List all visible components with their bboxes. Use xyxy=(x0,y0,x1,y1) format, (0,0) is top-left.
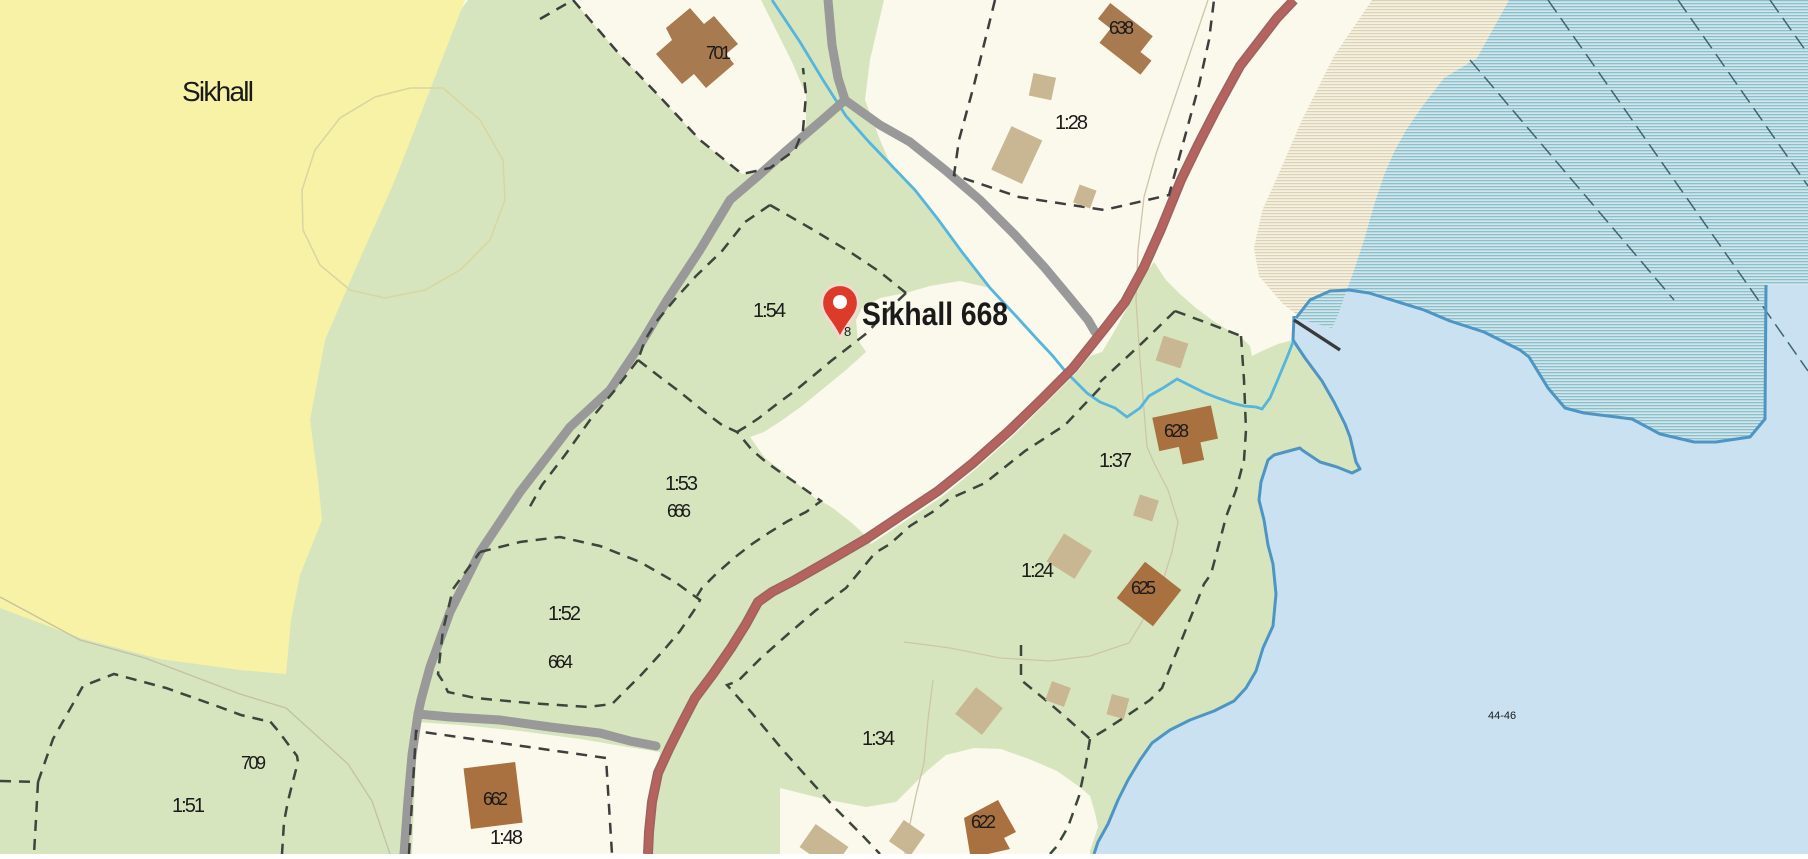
svg-text:1:24: 1:24 xyxy=(1021,560,1054,582)
svg-text:1:54: 1:54 xyxy=(753,300,786,322)
svg-text:Sikhall 668: Sikhall 668 xyxy=(862,296,1008,332)
svg-text:Sikhall: Sikhall xyxy=(182,76,254,107)
svg-text:1:52: 1:52 xyxy=(548,603,581,625)
svg-text:662: 662 xyxy=(483,789,508,809)
svg-text:44-46: 44-46 xyxy=(1488,710,1516,722)
svg-text:709: 709 xyxy=(241,753,266,773)
svg-text:1:37: 1:37 xyxy=(1099,450,1132,472)
svg-text:1:51: 1:51 xyxy=(172,795,205,817)
svg-text:625: 625 xyxy=(1131,578,1156,598)
svg-text:8: 8 xyxy=(844,324,851,339)
svg-text:1:28: 1:28 xyxy=(1055,112,1088,134)
svg-text:1:53: 1:53 xyxy=(665,473,698,495)
svg-text:628: 628 xyxy=(1164,421,1189,441)
svg-text:1:48: 1:48 xyxy=(490,827,523,849)
svg-text:638: 638 xyxy=(1109,18,1134,38)
svg-text:666: 666 xyxy=(667,501,691,521)
svg-text:1:34: 1:34 xyxy=(862,728,895,750)
svg-text:622: 622 xyxy=(971,812,996,832)
svg-text:701: 701 xyxy=(706,43,731,63)
svg-text:664: 664 xyxy=(548,652,573,672)
